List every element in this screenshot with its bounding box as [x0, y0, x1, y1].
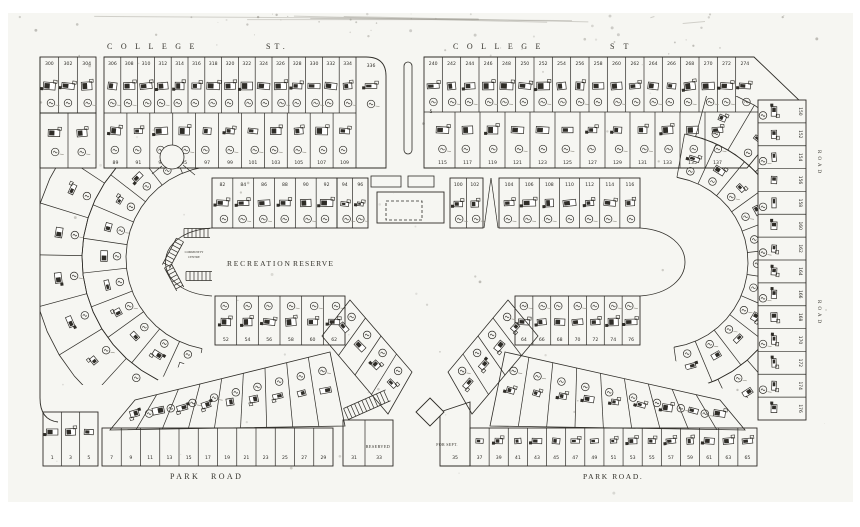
- house-footprint: [101, 251, 108, 262]
- lot-number: 316: [192, 61, 201, 67]
- lot-number: 47: [572, 455, 578, 461]
- lot-number: 156: [797, 176, 803, 185]
- lot-number: 150: [797, 107, 803, 116]
- lot-number: 39: [496, 455, 502, 461]
- lot-number: 63: [725, 455, 731, 461]
- recreation-reserve-label-word2: RESERVE: [293, 259, 334, 268]
- house-footprint: [702, 82, 715, 90]
- lot-number: 103: [271, 160, 280, 166]
- lot-number: 5: [87, 455, 90, 461]
- lot-number-5: 5: [430, 109, 433, 115]
- lot-number: 272: [722, 61, 731, 67]
- lot-number: 91: [135, 160, 141, 166]
- lot-number: 19: [224, 455, 230, 461]
- house-footprint: [572, 319, 583, 326]
- lot-number-336: 336: [367, 63, 376, 69]
- house-footprint: [226, 398, 234, 406]
- lot-number: 240: [429, 61, 438, 67]
- college-st-label-left-word: COLLEGE: [107, 42, 203, 51]
- lot-number: 176: [797, 404, 803, 413]
- lot-number: 43: [534, 455, 540, 461]
- house-footprint: [248, 128, 258, 134]
- lot-number: 41: [515, 455, 521, 461]
- lot-number: 74: [610, 337, 616, 343]
- lot-number: 166: [797, 290, 803, 299]
- lot-number: 326: [276, 61, 285, 67]
- scanned-subdivision-plan: 3003023043063083103123143163183203223243…: [0, 0, 860, 527]
- lot-number: 13: [166, 455, 172, 461]
- lot-number: 320: [226, 61, 235, 67]
- lot-number: 246: [484, 61, 493, 67]
- lot-number: 254: [557, 61, 566, 67]
- house-footprint: [590, 439, 598, 444]
- lot-number: 51: [611, 455, 617, 461]
- lot-number: 76: [628, 337, 634, 343]
- lot-number: 33: [376, 455, 382, 461]
- lot-number: 49: [591, 455, 597, 461]
- lot-number: 310: [142, 61, 151, 67]
- house-footprint: [557, 82, 567, 90]
- lot-number: 125: [563, 160, 572, 166]
- house-footprint: [257, 82, 270, 89]
- community-centre-label-line1: COMMUNITY: [185, 250, 205, 254]
- lot-number: 264: [649, 61, 658, 67]
- lot-number: 58: [288, 337, 294, 343]
- lot-number: 53: [630, 455, 636, 461]
- house-footprint: [562, 127, 573, 133]
- college-st-label-right-st: ST: [610, 42, 637, 51]
- lot-number: 17: [205, 455, 211, 461]
- lot-number: 11: [147, 455, 153, 461]
- lot-number: 54: [245, 337, 251, 343]
- lot-number: 110: [565, 182, 574, 188]
- lot-number: 172: [797, 359, 803, 368]
- lot-number: 27: [301, 455, 307, 461]
- lot-number: 252: [539, 61, 548, 67]
- college-st-label-right-word: COLLEGE: [453, 42, 549, 51]
- lot-number: 112: [585, 182, 594, 188]
- lot-number: 158: [797, 199, 803, 208]
- lot-number: 104: [505, 182, 514, 188]
- house-footprint: [203, 128, 211, 135]
- lot-number: 129: [613, 160, 622, 166]
- side-road-label-lower: ROAD: [816, 300, 821, 326]
- lot-number: 302: [64, 61, 73, 67]
- house-footprint: [772, 198, 776, 208]
- lot-number: 96: [357, 182, 363, 188]
- lot-number: 258: [594, 61, 603, 67]
- house-footprint: [300, 199, 311, 207]
- lot-number: 137: [713, 160, 722, 166]
- lot-number: 308: [125, 61, 134, 67]
- lot-number: 61: [706, 455, 712, 461]
- lot-number: 64: [521, 337, 527, 343]
- lot-number: 248: [502, 61, 511, 67]
- park-road-label-left-word1: PARK: [170, 472, 200, 481]
- lot-number: 332: [326, 61, 335, 67]
- lot-number: 152: [797, 130, 803, 139]
- house-footprint: [592, 83, 604, 90]
- lot-number: 117: [463, 160, 472, 166]
- lot-number: 65: [745, 455, 751, 461]
- house-footprint: [554, 319, 565, 326]
- lot-number: 334: [343, 61, 352, 67]
- lot-number: 89: [113, 160, 119, 166]
- lot-number: 300: [45, 61, 54, 67]
- lot-number: 256: [575, 61, 584, 67]
- lot-number: 70: [575, 337, 581, 343]
- lot-number: 66: [539, 337, 545, 343]
- house-footprint: [325, 82, 338, 90]
- east-column: 1501521541561581601621641661681701721741…: [758, 100, 806, 420]
- house-footprint: [563, 199, 576, 207]
- lot-number: 102: [470, 182, 479, 188]
- lot-number: 99: [227, 160, 233, 166]
- lot-number: 133: [663, 160, 672, 166]
- lot-number: 25: [282, 455, 288, 461]
- lot-number: 312: [158, 61, 167, 67]
- plan-svg: 3003023043063083103123143163183203223243…: [0, 0, 860, 527]
- lot-number: 57: [668, 455, 674, 461]
- park-road-label-left-word2: ROAD: [211, 472, 243, 481]
- lot-number: 60: [310, 337, 316, 343]
- house-footprint: [552, 438, 560, 444]
- house-footprint: [84, 429, 93, 435]
- lot-number: 244: [465, 61, 474, 67]
- lot-number: 21: [243, 455, 249, 461]
- lot-number: 266: [667, 61, 676, 67]
- lot-number: 318: [209, 61, 218, 67]
- lot-number: 123: [538, 160, 547, 166]
- lot-number: 268: [685, 61, 694, 67]
- lot-number: 174: [797, 382, 803, 391]
- lot-number: 3: [69, 455, 72, 461]
- lot-number: 324: [259, 61, 268, 67]
- lot-number: 162: [797, 244, 803, 253]
- lot-number: 108: [545, 182, 554, 188]
- lot-number: 168: [797, 313, 803, 322]
- lot-number: 88: [282, 182, 288, 188]
- lot-number: 92: [324, 182, 330, 188]
- lot-number: 121: [513, 160, 522, 166]
- house-footprint: [258, 200, 270, 207]
- lot-number: 56: [266, 337, 272, 343]
- lot-number: 15: [186, 455, 192, 461]
- lot-number: 97: [204, 160, 210, 166]
- lot-number: 29: [320, 455, 326, 461]
- lot-number: 90: [303, 182, 309, 188]
- lot-number: 274: [740, 61, 749, 67]
- lot-number: 52: [223, 337, 229, 343]
- lot-number: 7: [110, 455, 113, 461]
- side-road-label-upper: ROAD: [816, 150, 821, 176]
- house-footprint: [447, 82, 456, 90]
- lot-number: 314: [175, 61, 184, 67]
- house-footprint: [667, 83, 676, 89]
- lot-number: 55: [649, 455, 655, 461]
- house-footprint: [536, 126, 549, 133]
- lot-number: 116: [626, 182, 635, 188]
- lot-number: 119: [488, 160, 497, 166]
- lot-number: 115: [438, 160, 447, 166]
- lot-number: 262: [630, 61, 639, 67]
- lot-number: 154: [797, 153, 803, 162]
- lot-number: 9: [129, 455, 132, 461]
- lot-number: 114: [605, 182, 614, 188]
- college-st-label-left-st: ST.: [266, 42, 289, 51]
- lot-number: 106: [525, 182, 534, 188]
- reserved-lot-label: RESERVED: [366, 444, 391, 449]
- lot-number: 37: [477, 455, 483, 461]
- house-footprint: [462, 126, 473, 134]
- lot-number: 260: [612, 61, 621, 67]
- house-footprint: [514, 438, 521, 444]
- lot-number: 160: [797, 222, 803, 231]
- lot-number: 164: [797, 267, 803, 276]
- for-sept-lot-label: FOR SEPT.: [436, 442, 458, 447]
- lot-number: 45: [553, 455, 559, 461]
- house-footprint: [55, 227, 63, 238]
- house-footprint: [648, 82, 659, 90]
- house-footprint: [771, 176, 777, 184]
- lot-number: 105: [294, 160, 303, 166]
- house-footprint: [108, 82, 118, 90]
- lot-number: 131: [638, 160, 647, 166]
- lot-number: 72: [592, 337, 598, 343]
- lot-number: 82: [219, 182, 225, 188]
- lot-number: 101: [249, 160, 258, 166]
- lot-number: 1: [51, 455, 54, 461]
- lot-number: 330: [310, 61, 319, 67]
- lot-number: 94: [342, 182, 348, 188]
- house-footprint: [511, 126, 524, 133]
- community-centre-label-line2: CENTRE: [188, 255, 200, 259]
- lot-number: 306: [108, 61, 117, 67]
- lot-number: 322: [242, 61, 251, 67]
- lot-number: 304: [82, 61, 91, 67]
- recreation-reserve-label-word1: RECREATION: [227, 259, 292, 268]
- lot-number: 109: [340, 160, 349, 166]
- lot-number: 31: [351, 455, 357, 461]
- lot-number: 84: [240, 182, 246, 188]
- house-footprint: [611, 82, 622, 90]
- lot-number: 68: [557, 337, 563, 343]
- lot-number: 270: [704, 61, 713, 67]
- lot-number: 62: [331, 337, 337, 343]
- lot-number: 170: [797, 336, 803, 345]
- house-footprint: [476, 439, 484, 444]
- lot-number: 86: [261, 182, 267, 188]
- house-footprint: [308, 83, 320, 89]
- lot-number: 242: [447, 61, 456, 67]
- lot-number: 107: [317, 160, 326, 166]
- house-footprint: [771, 153, 776, 162]
- lot-number: 59: [687, 455, 693, 461]
- lot-number: 328: [293, 61, 302, 67]
- lot-number: 127: [588, 160, 597, 166]
- park-road-label-right: PARK ROAD.: [583, 472, 643, 481]
- lot-number: 250: [520, 61, 529, 67]
- lot-number: 100: [454, 182, 463, 188]
- lot-number: 35: [452, 455, 458, 461]
- lot-number: 23: [263, 455, 269, 461]
